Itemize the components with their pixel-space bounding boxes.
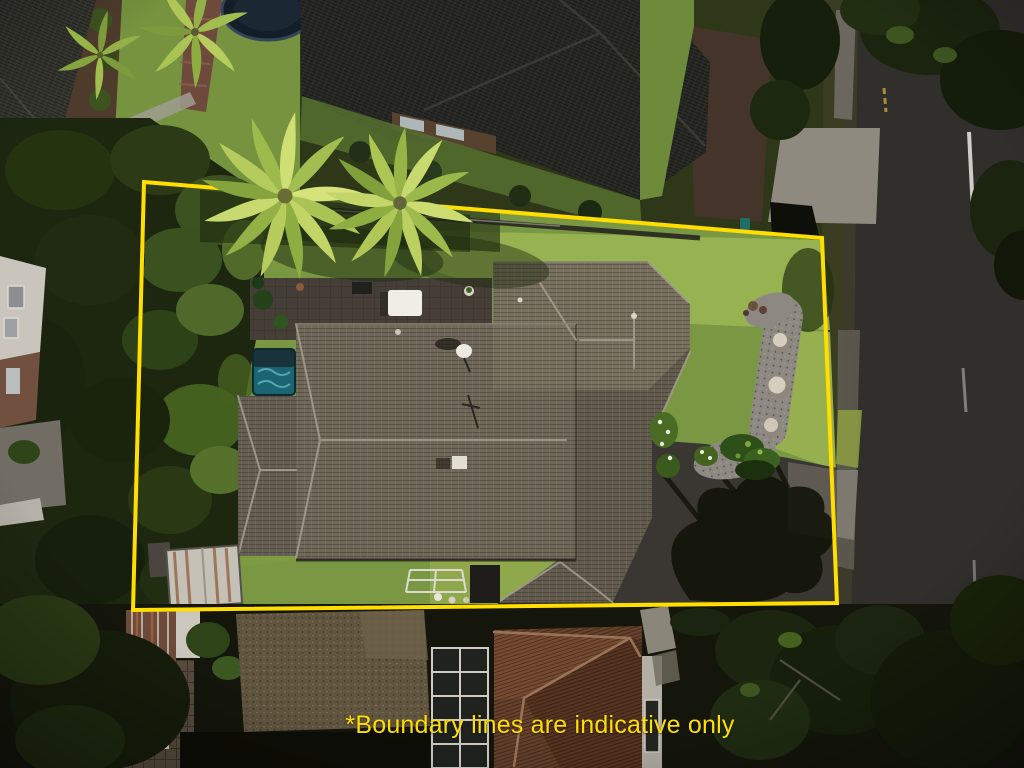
aerial-property-photo: ; [0,0,1024,768]
vignette [0,0,1024,768]
aerial-photo-canvas: ; [0,0,1024,768]
boundary-disclaimer-text: *Boundary lines are indicative only [345,711,734,740]
